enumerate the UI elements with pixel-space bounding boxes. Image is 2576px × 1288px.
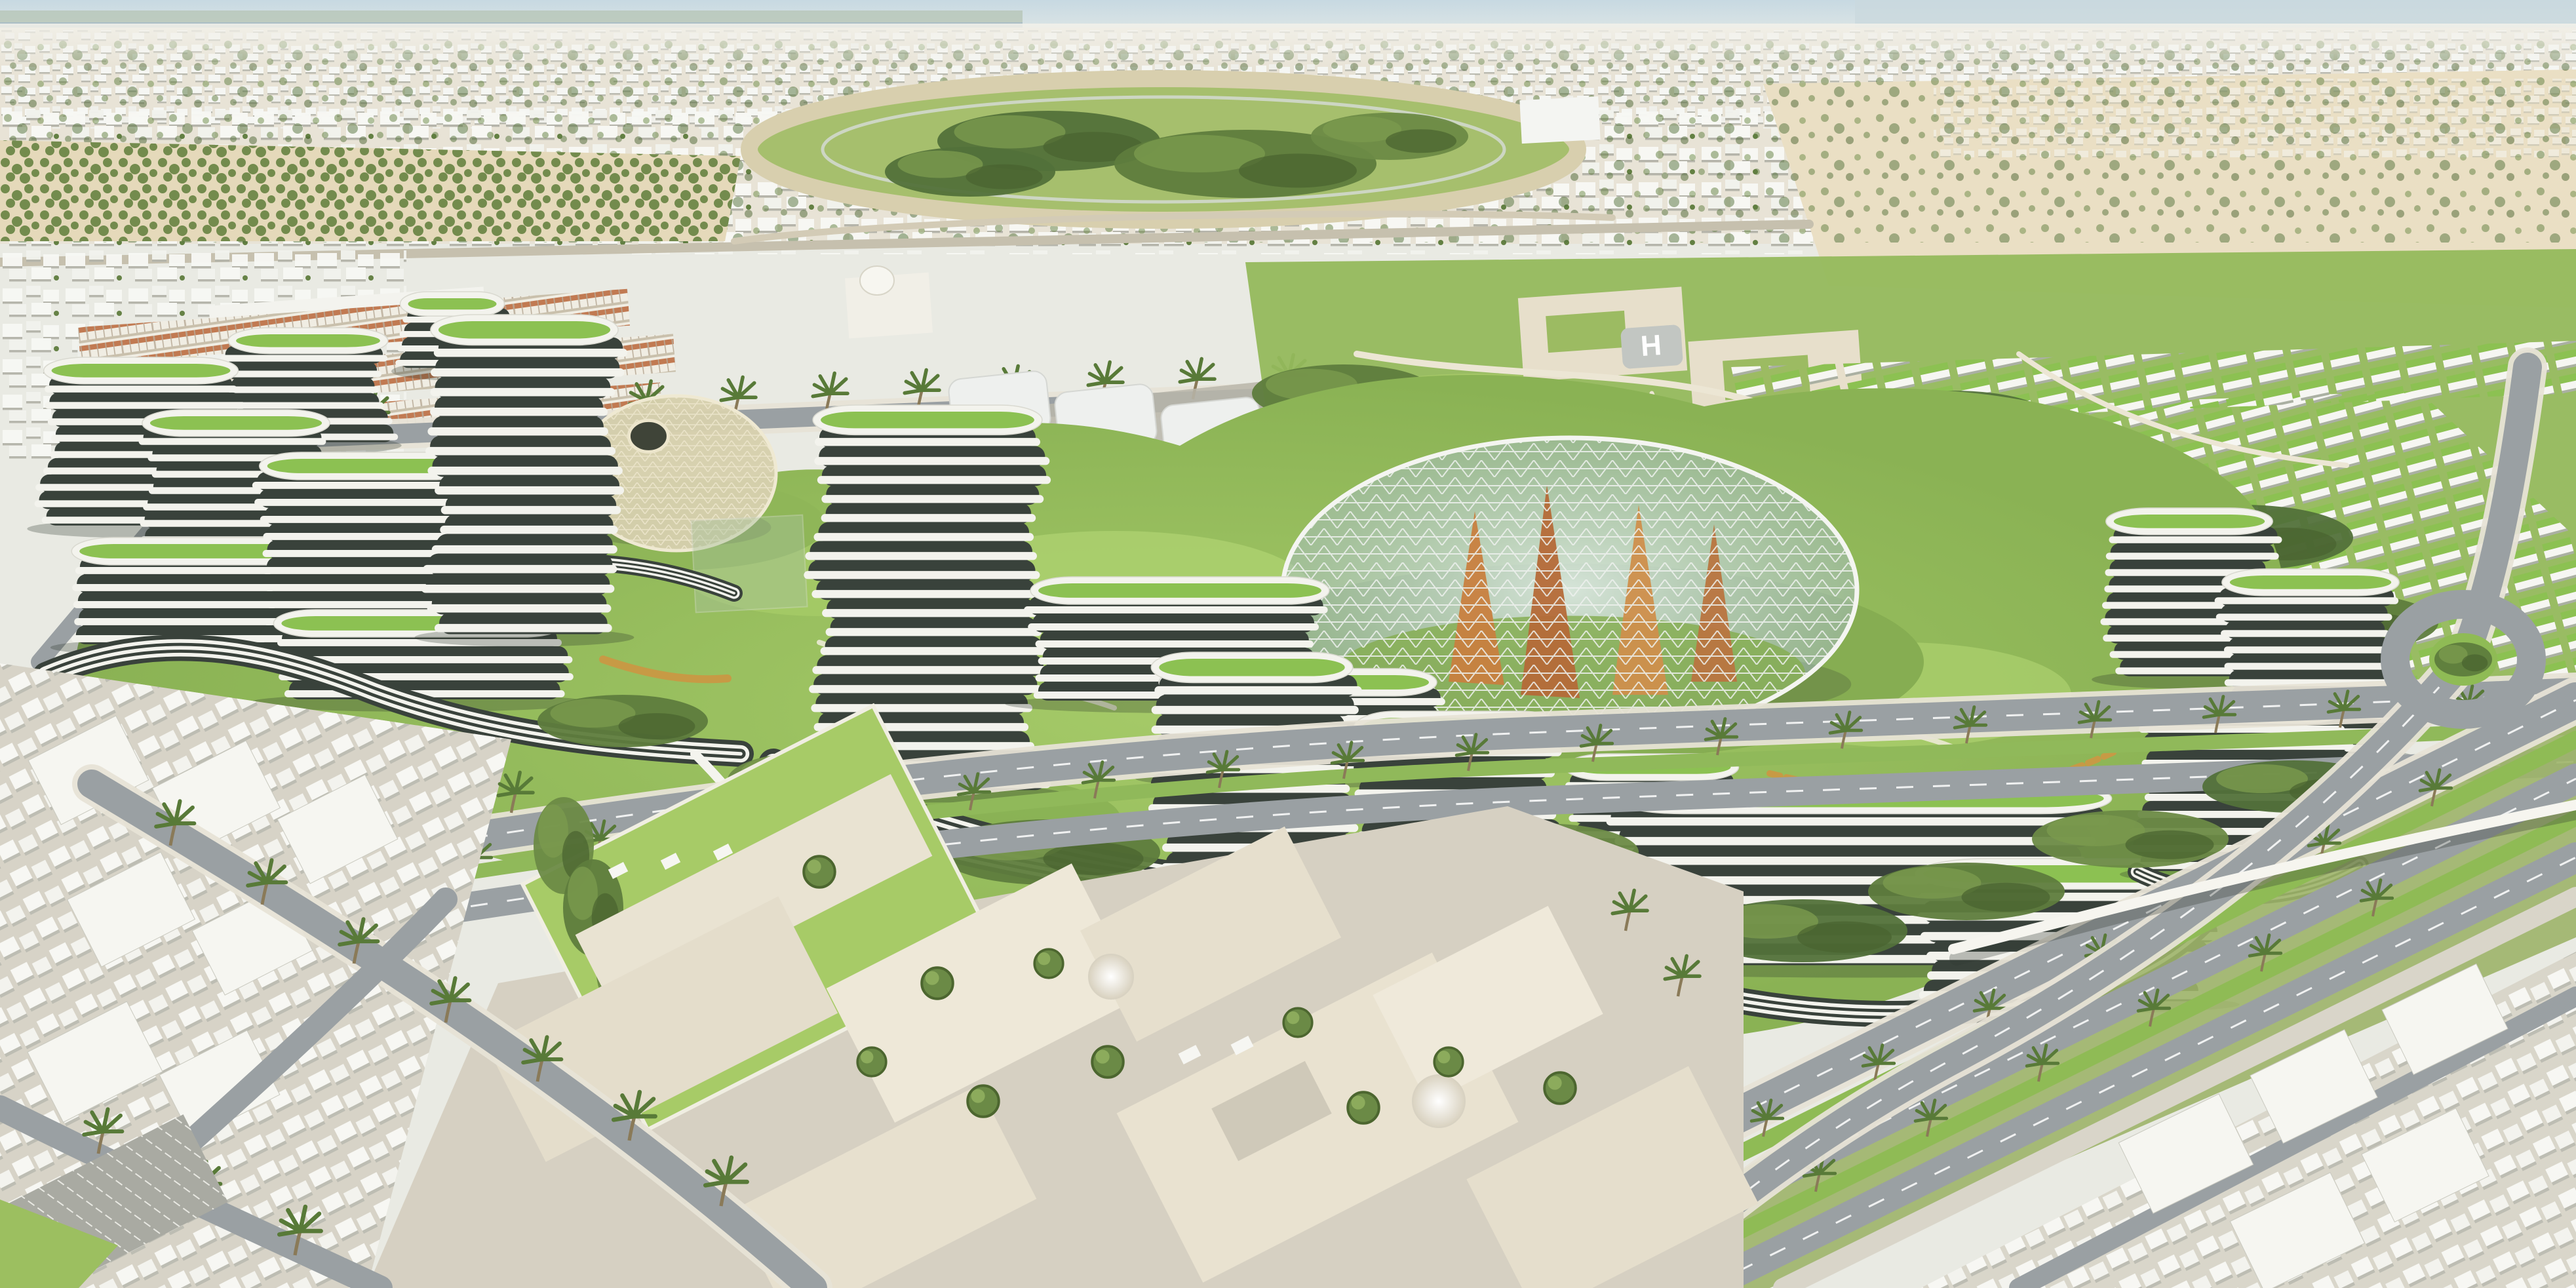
corridor-trees: [2032, 810, 2229, 868]
infield-trees: [885, 147, 1055, 197]
helipad-mark: H: [1639, 329, 1662, 362]
dome-oculus: [629, 420, 668, 452]
orchard-trees: [0, 140, 741, 241]
mosque-dome: [860, 266, 894, 295]
roundabout-trees: [2434, 642, 2492, 676]
street-trees: [537, 695, 708, 747]
infield-trees: [1311, 113, 1468, 160]
scene-canvas: H: [0, 0, 2576, 1288]
grandstand: [1519, 96, 1600, 144]
tent-roof: [1413, 1075, 1465, 1127]
horizon-haze: [0, 24, 2576, 69]
masterplan-world: H: [0, 0, 2576, 1288]
tent-roof: [1089, 954, 1133, 999]
sports-net-enclosure: [691, 515, 807, 613]
svg-text:H: H: [1639, 329, 1662, 362]
green-roof-tower: [415, 315, 634, 647]
architectural-aerial-render: H: [0, 0, 2576, 1288]
school-yard: [1546, 311, 1627, 353]
corridor-trees: [1868, 863, 2065, 920]
